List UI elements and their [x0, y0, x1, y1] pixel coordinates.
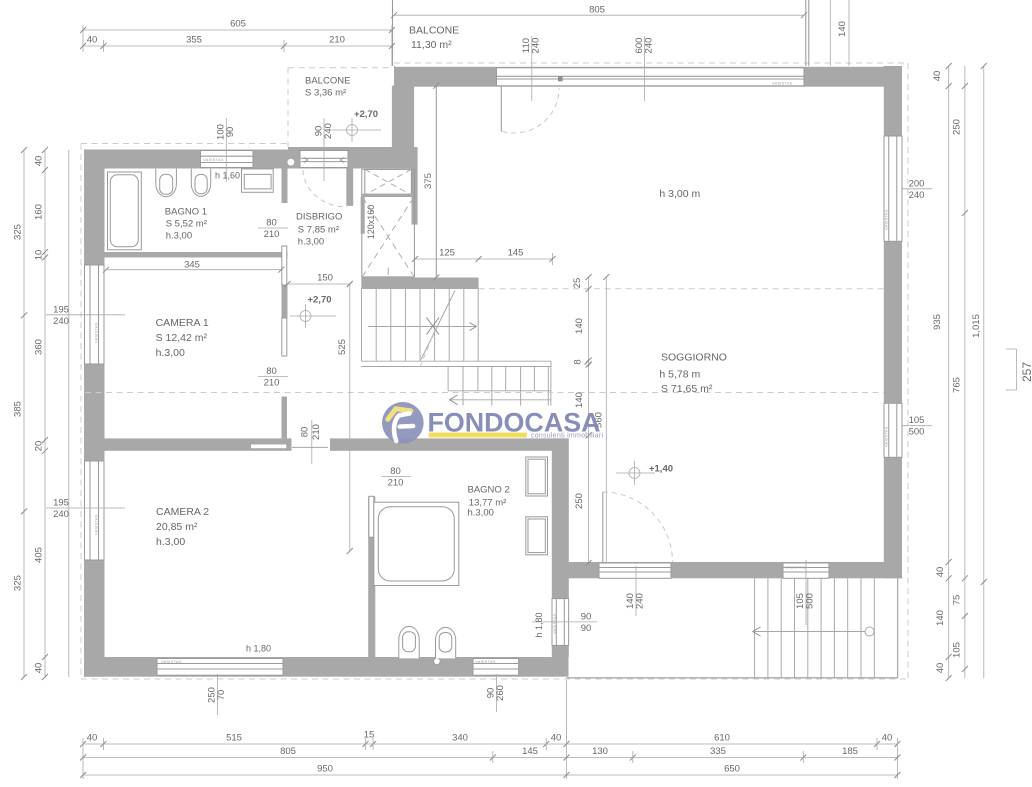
svg-text:405: 405	[34, 547, 45, 563]
svg-text:90: 90	[225, 127, 236, 138]
svg-text:260: 260	[495, 685, 506, 701]
svg-text:765: 765	[952, 377, 963, 393]
svg-text:h.3,00: h.3,00	[298, 237, 324, 248]
svg-text:200: 200	[909, 178, 925, 189]
svg-text:240: 240	[644, 38, 655, 54]
svg-text:40: 40	[87, 35, 98, 46]
svg-text:150: 150	[317, 273, 333, 284]
svg-text:BALCONE: BALCONE	[305, 76, 350, 87]
svg-text:240: 240	[53, 509, 69, 520]
svg-text:h.3,00: h.3,00	[156, 347, 185, 359]
svg-text:CAMERA 2: CAMERA 2	[156, 506, 209, 518]
svg-text:805: 805	[589, 5, 605, 16]
svg-text:950: 950	[317, 764, 333, 775]
svg-text:VASISTAS: VASISTAS	[94, 514, 99, 535]
svg-text:h 1,60: h 1,60	[215, 171, 240, 181]
svg-text:210: 210	[388, 478, 404, 489]
svg-text:40: 40	[34, 663, 45, 674]
svg-text:VASISTAS: VASISTAS	[203, 157, 224, 162]
svg-text:10: 10	[34, 250, 45, 261]
svg-text:145: 145	[508, 248, 524, 259]
svg-text:345: 345	[184, 260, 200, 271]
svg-text:8: 8	[573, 359, 584, 364]
svg-text:160: 160	[34, 204, 45, 220]
svg-text:70: 70	[216, 690, 227, 701]
svg-text:BALCONE: BALCONE	[409, 25, 459, 37]
svg-text:375: 375	[423, 173, 434, 189]
svg-text:140: 140	[935, 610, 946, 626]
svg-text:805: 805	[280, 746, 296, 757]
svg-text:S 71,65 m²: S 71,65 m²	[661, 383, 713, 395]
svg-text:S 5,52 m²: S 5,52 m²	[166, 219, 207, 230]
svg-text:consulenti immobiliari: consulenti immobiliari	[531, 433, 603, 440]
svg-text:325: 325	[13, 224, 24, 240]
svg-text:140: 140	[837, 21, 848, 37]
svg-text:75: 75	[952, 595, 963, 606]
svg-text:VASISTAS: VASISTAS	[161, 659, 182, 664]
svg-text:140: 140	[574, 318, 585, 334]
svg-text:340: 340	[452, 733, 468, 744]
svg-text:80: 80	[390, 466, 401, 477]
svg-text:VASISTAS: VASISTAS	[94, 322, 99, 343]
svg-text:40: 40	[935, 567, 946, 578]
svg-text:90: 90	[581, 623, 592, 634]
svg-text:15: 15	[364, 730, 375, 741]
svg-text:210: 210	[264, 378, 280, 389]
svg-text:20,85 m²: 20,85 m²	[156, 521, 198, 533]
svg-text:h 3,00 m: h 3,00 m	[659, 188, 700, 200]
svg-text:VASISTAS: VASISTAS	[552, 613, 557, 634]
svg-text:185: 185	[842, 746, 858, 757]
svg-text:25: 25	[572, 278, 583, 289]
svg-text:210: 210	[329, 35, 345, 46]
svg-text:525: 525	[337, 339, 348, 355]
svg-text:515: 515	[226, 733, 242, 744]
svg-text:650: 650	[724, 764, 740, 775]
svg-text:145: 145	[522, 746, 538, 757]
svg-text:DISBRIGO: DISBRIGO	[296, 212, 342, 223]
svg-text:VASISTAS: VASISTAS	[475, 659, 496, 664]
svg-text:385: 385	[13, 401, 24, 417]
svg-text:VASISTAS: VASISTAS	[884, 209, 889, 230]
svg-text:120x160: 120x160	[366, 205, 376, 240]
svg-text:105: 105	[909, 415, 925, 426]
svg-text:BAGNO 1: BAGNO 1	[165, 207, 207, 218]
svg-text:250: 250	[952, 119, 963, 135]
svg-text:195: 195	[53, 498, 69, 509]
svg-text:h 5,78 m: h 5,78 m	[659, 369, 700, 381]
svg-text:+2,70: +2,70	[307, 295, 331, 306]
svg-text:40: 40	[87, 733, 98, 744]
svg-text:40: 40	[882, 733, 893, 744]
svg-text:500: 500	[805, 593, 816, 609]
svg-text:130: 130	[592, 746, 608, 757]
svg-text:40: 40	[932, 71, 943, 82]
svg-text:140: 140	[574, 392, 585, 408]
svg-text:80: 80	[266, 366, 277, 377]
svg-text:BAGNO 2: BAGNO 2	[468, 485, 510, 496]
svg-text:257: 257	[1020, 362, 1032, 382]
svg-text:935: 935	[932, 314, 943, 330]
svg-text:h 1,80: h 1,80	[534, 612, 544, 637]
svg-text:105: 105	[952, 642, 963, 658]
svg-text:325: 325	[13, 575, 24, 591]
svg-text:335: 335	[710, 746, 726, 757]
svg-text:240: 240	[909, 190, 925, 201]
svg-text:11,30 m²: 11,30 m²	[411, 39, 452, 51]
svg-text:40: 40	[34, 156, 45, 167]
svg-text:S 12,42 m²: S 12,42 m²	[156, 332, 208, 344]
svg-text:360: 360	[34, 339, 45, 355]
svg-text:605: 605	[230, 19, 246, 30]
svg-text:1,015: 1,015	[971, 314, 982, 338]
svg-text:SOGGIORNO: SOGGIORNO	[661, 352, 727, 364]
svg-text:610: 610	[714, 733, 730, 744]
svg-text:VASISTAS: VASISTAS	[785, 565, 806, 570]
svg-text:80: 80	[266, 218, 277, 229]
svg-text:240: 240	[531, 38, 542, 54]
svg-text:+2,70: +2,70	[354, 109, 378, 120]
svg-text:h.3,00: h.3,00	[468, 508, 494, 519]
svg-text:240: 240	[53, 316, 69, 327]
svg-text:355: 355	[186, 35, 202, 46]
svg-text:CAMERA 1: CAMERA 1	[156, 317, 209, 329]
svg-text:20: 20	[34, 441, 45, 452]
svg-text:VASISTAS: VASISTAS	[772, 80, 793, 85]
svg-text:90: 90	[581, 611, 592, 622]
svg-text:40: 40	[935, 663, 946, 674]
svg-text:40: 40	[551, 733, 562, 744]
svg-text:240: 240	[323, 123, 334, 139]
svg-text:210: 210	[311, 424, 322, 440]
svg-text:500: 500	[909, 427, 925, 438]
svg-text:210: 210	[264, 229, 280, 240]
svg-text:VASISTAS: VASISTAS	[884, 426, 889, 447]
svg-text:125: 125	[439, 248, 455, 259]
svg-text:h 1,80: h 1,80	[246, 644, 271, 654]
svg-text:h.3,00: h.3,00	[156, 536, 185, 548]
svg-text:80: 80	[299, 427, 310, 438]
svg-text:h.3,00: h.3,00	[166, 231, 192, 242]
svg-text:S 3,36 m²: S 3,36 m²	[305, 88, 346, 99]
svg-text:195: 195	[53, 304, 69, 315]
svg-text:250: 250	[574, 493, 585, 509]
svg-text:240: 240	[635, 593, 646, 609]
svg-text:S 7,85 m²: S 7,85 m²	[298, 225, 339, 236]
